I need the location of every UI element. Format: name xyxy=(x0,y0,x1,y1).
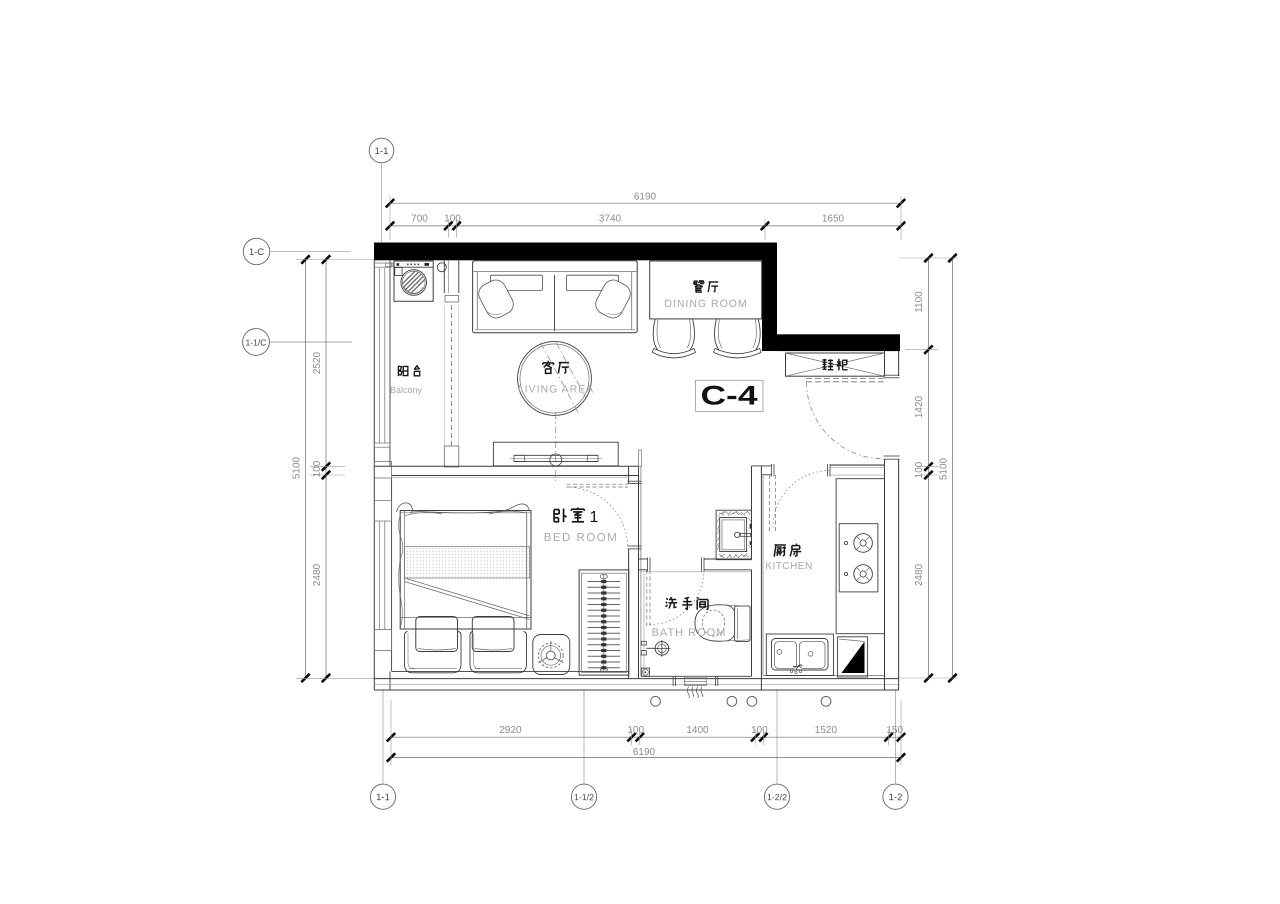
svg-text:BATH ROOM: BATH ROOM xyxy=(652,627,727,639)
svg-text:1-1/C: 1-1/C xyxy=(245,337,266,347)
svg-text:KITCHEN: KITCHEN xyxy=(765,561,812,572)
svg-text:2920: 2920 xyxy=(499,725,522,736)
svg-text:2520: 2520 xyxy=(312,351,323,374)
svg-text:1400: 1400 xyxy=(686,725,709,736)
svg-text:6190: 6190 xyxy=(633,747,656,758)
svg-text:1-1: 1-1 xyxy=(375,146,389,157)
svg-text:1: 1 xyxy=(590,509,599,526)
svg-text:1-2: 1-2 xyxy=(889,792,903,803)
svg-text:100: 100 xyxy=(444,213,461,224)
svg-text:Balcony: Balcony xyxy=(390,385,423,395)
svg-text:C-4: C-4 xyxy=(700,380,757,410)
svg-text:2480: 2480 xyxy=(914,563,925,586)
svg-text:1-1/2: 1-1/2 xyxy=(574,792,594,802)
svg-text:LIVING AREA: LIVING AREA xyxy=(518,383,594,395)
svg-text:5100: 5100 xyxy=(939,457,950,480)
svg-text:2480: 2480 xyxy=(312,563,323,586)
svg-text:1-1: 1-1 xyxy=(376,792,390,803)
svg-text:700: 700 xyxy=(411,213,428,224)
svg-text:3740: 3740 xyxy=(599,213,622,224)
svg-text:1100: 1100 xyxy=(914,291,925,313)
svg-text:100: 100 xyxy=(751,725,768,736)
svg-text:100: 100 xyxy=(627,725,644,736)
svg-text:DINING ROOM: DINING ROOM xyxy=(664,298,747,310)
svg-text:BED ROOM: BED ROOM xyxy=(544,532,619,544)
svg-text:1420: 1420 xyxy=(914,395,925,418)
svg-text:6190: 6190 xyxy=(634,191,657,202)
svg-text:1650: 1650 xyxy=(822,213,845,224)
svg-text:5100: 5100 xyxy=(292,456,303,479)
svg-text:1520: 1520 xyxy=(815,725,838,736)
svg-text:1-2/2: 1-2/2 xyxy=(767,792,787,802)
svg-text:1-C: 1-C xyxy=(249,247,264,258)
svg-text:100: 100 xyxy=(914,461,925,478)
